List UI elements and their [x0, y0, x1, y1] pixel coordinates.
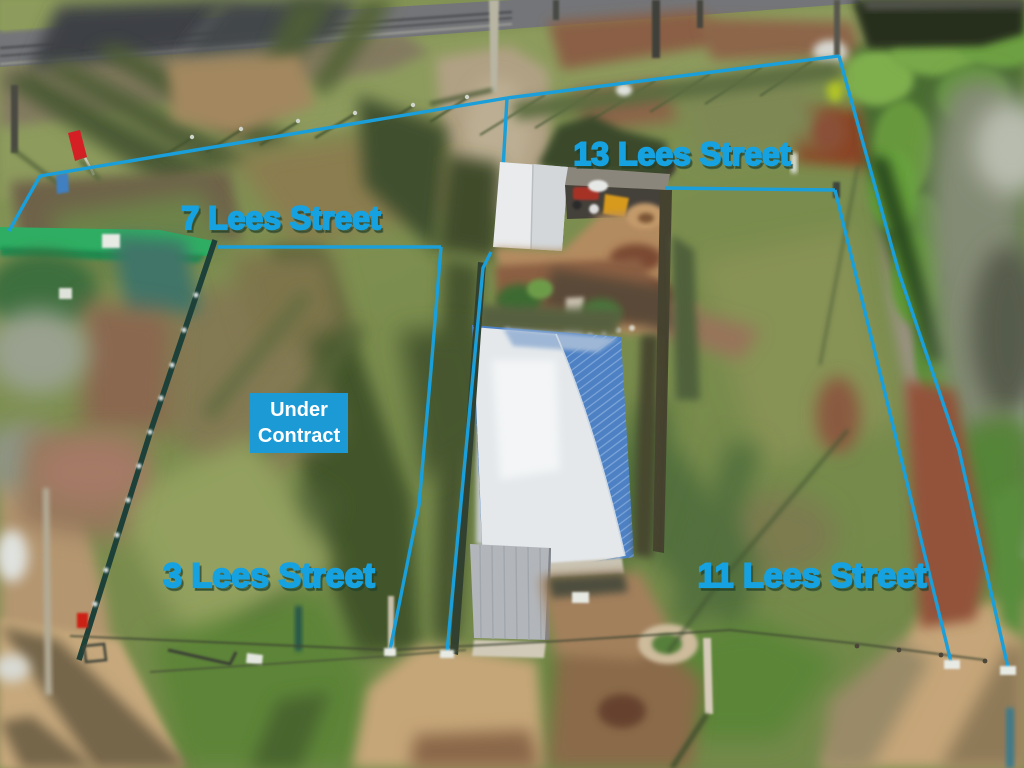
- svg-text:Contract: Contract: [258, 425, 341, 447]
- svg-text:Under: Under: [270, 399, 328, 421]
- svg-text:3 Lees Street: 3 Lees Street: [163, 557, 375, 595]
- svg-text:7 Lees Street: 7 Lees Street: [181, 200, 381, 236]
- svg-text:13 Lees Street: 13 Lees Street: [573, 136, 790, 172]
- svg-text:11 Lees Street: 11 Lees Street: [698, 557, 927, 595]
